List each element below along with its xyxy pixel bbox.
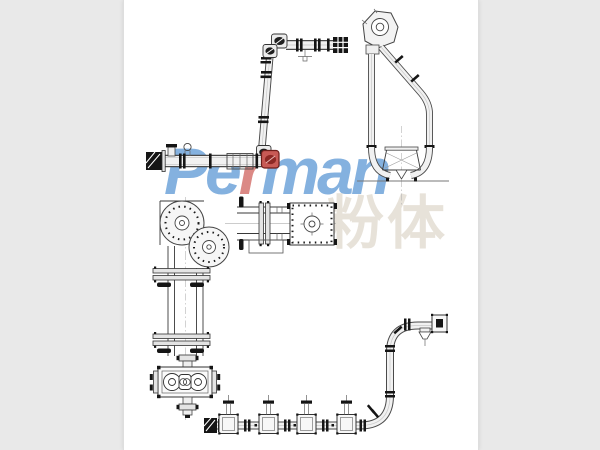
conveyor-drawing bbox=[0, 0, 600, 450]
product-image: Perman 粉体 bbox=[0, 0, 600, 450]
top-z-elevator-conveyor bbox=[257, 34, 349, 159]
right-loop-pipe-conveyor bbox=[357, 9, 449, 206]
corner-wheel-assembly-plan bbox=[160, 197, 337, 268]
vertical-conveyor-with-drive-unit bbox=[150, 246, 220, 420]
bottom-multi-inlet-s-curve-conveyor bbox=[204, 314, 448, 435]
